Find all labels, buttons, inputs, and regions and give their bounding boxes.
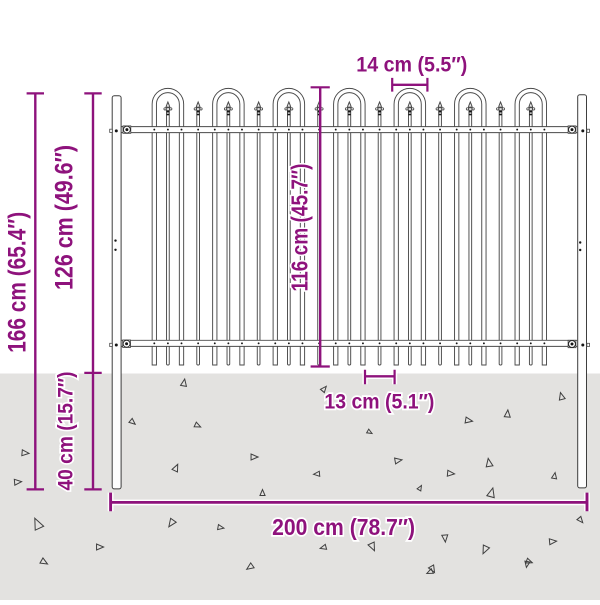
svg-text:116 cm (45.7″): 116 cm (45.7″): [286, 164, 312, 292]
svg-text:14 cm (5.5″): 14 cm (5.5″): [356, 52, 467, 76]
svg-text:166 cm (65.4″): 166 cm (65.4″): [4, 212, 32, 353]
svg-text:13 cm (5.1″): 13 cm (5.1″): [324, 389, 434, 413]
svg-text:40 cm (15.7″): 40 cm (15.7″): [53, 372, 77, 491]
svg-text:200 cm (78.7″): 200 cm (78.7″): [272, 514, 415, 540]
svg-text:126 cm (49.6″): 126 cm (49.6″): [51, 145, 79, 290]
